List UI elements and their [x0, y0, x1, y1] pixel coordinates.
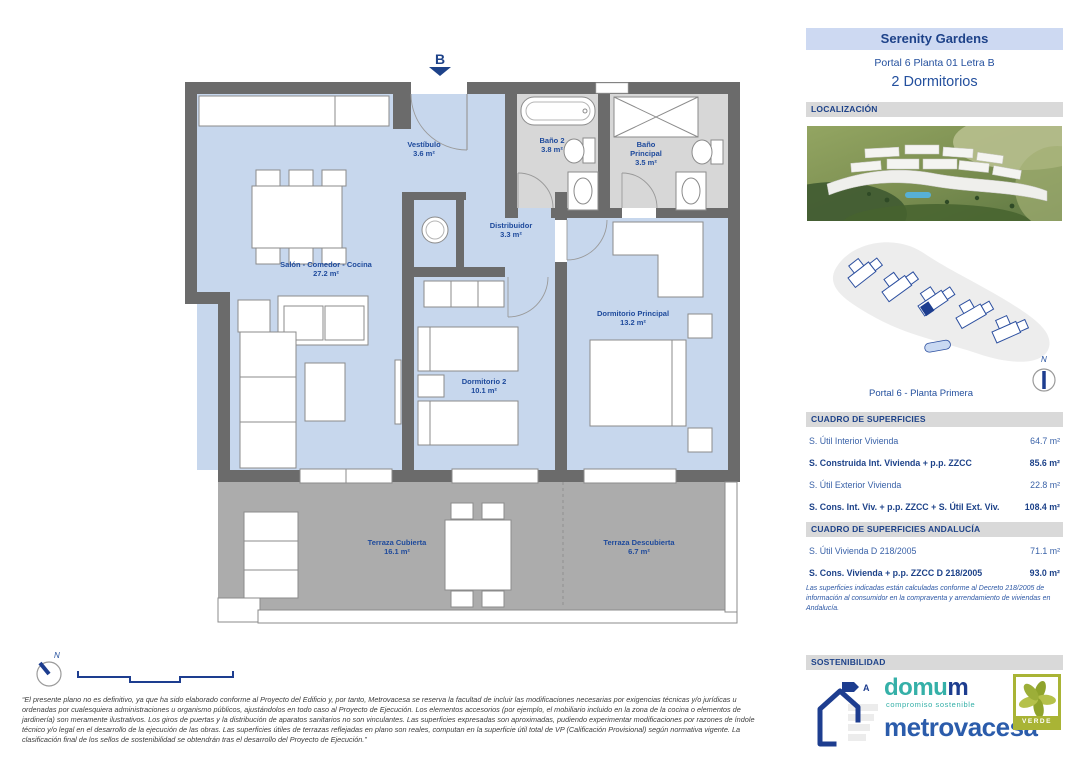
- project-title: Serenity Gardens: [806, 28, 1063, 50]
- svg-text:N: N: [54, 651, 60, 660]
- sidebar: Serenity Gardens Portal 6 Planta 01 Letr…: [806, 28, 1063, 752]
- entrance-arrow-icon: [429, 67, 451, 76]
- site-plan-caption: Portal 6 - Planta Primera: [806, 388, 1036, 399]
- entrance-marker: B: [429, 52, 451, 76]
- section-sostenibilidad: SOSTENIBILIDAD: [806, 655, 1063, 670]
- wall-shaft: [596, 83, 628, 93]
- sustainability-logos: A domum compromiso sostenible metrovaces…: [806, 672, 1063, 752]
- surface-row: S. Útil Exterior Vivienda22.8 m²: [806, 474, 1063, 496]
- site-plan: Portal 6 - Planta Primera N: [806, 226, 1063, 409]
- surface-row: S. Útil Interior Vivienda64.7 m²: [806, 430, 1063, 452]
- windows: [300, 469, 676, 483]
- bedroom2-furniture: [418, 281, 518, 445]
- disclaimer-text: “El presente plano no es definitivo, ya …: [22, 695, 772, 745]
- section-localizacion: LOCALIZACIÓN: [806, 102, 1063, 117]
- room-label-vestibulo: Vestíbulo3.6 m²: [407, 140, 440, 158]
- room-label-distribuidor: Distribuidor3.3 m²: [490, 221, 533, 239]
- room-label-salon: Salón - Comedor - Cocina27.2 m²: [280, 260, 372, 278]
- room-label-terraza-cubierta: Terraza Cubierta16.1 m²: [368, 538, 427, 556]
- room-label-bano2: Baño 23.8 m²: [539, 136, 564, 154]
- section-superficies: CUADRO DE SUPERFICIES: [806, 412, 1063, 427]
- room-label-terraza-descubierta: Terraza Descubierta6.7 m²: [603, 538, 674, 556]
- verde-label: VERDE: [1016, 716, 1058, 727]
- domum-tagline: compromiso sostenible: [886, 700, 975, 709]
- site-north-compass-icon: N: [1029, 352, 1061, 398]
- north-compass-icon: N: [26, 646, 76, 692]
- svg-text:N: N: [1041, 355, 1047, 364]
- unit-reference: Portal 6 Planta 01 Letra B: [806, 57, 1063, 69]
- bedroom-count: 2 Dormitorios: [806, 74, 1063, 90]
- decree-note: Las superficies indicadas están calculad…: [806, 584, 1056, 614]
- section-profile-icon: [75, 662, 245, 686]
- surface-row: S. Construida Int. Vivienda + p.p. ZZCC8…: [806, 452, 1063, 474]
- domum-logo: domum: [884, 676, 968, 700]
- site-plan-drawing: [806, 226, 1063, 386]
- room-label-bano-principal: Baño Principal3.5 m²: [622, 140, 670, 167]
- verde-leaf-icon: [1016, 678, 1058, 718]
- location-photo: [807, 126, 1062, 221]
- svg-text:A: A: [863, 683, 870, 693]
- room-label-dormitorio2: Dormitorio 210.1 m²: [462, 377, 507, 395]
- energy-house-icon: A: [806, 674, 882, 752]
- surface-row: S. Cons. Int. Viv. + p.p. ZZCC + S. Útil…: [806, 496, 1063, 518]
- room-label-dormitorio-principal: Dormitorio Principal13.2 m²: [597, 309, 669, 327]
- surface-row: S. Cons. Vivienda + p.p. ZZCC D 218/2005…: [806, 562, 1063, 584]
- pool-icon: [924, 339, 951, 352]
- floor-plan: [0, 0, 780, 700]
- section-superficies-andalucia: CUADRO DE SUPERFICIES ANDALUCÍA: [806, 522, 1063, 537]
- surface-row: S. Útil Vivienda D 218/200571.1 m²: [806, 540, 1063, 562]
- verde-badge: VERDE: [1013, 674, 1061, 730]
- entrance-letter: B: [429, 52, 451, 66]
- plan-sheet: B Vestíbulo3.6 m² Baño 23.8 m² Baño Prin…: [0, 0, 1080, 764]
